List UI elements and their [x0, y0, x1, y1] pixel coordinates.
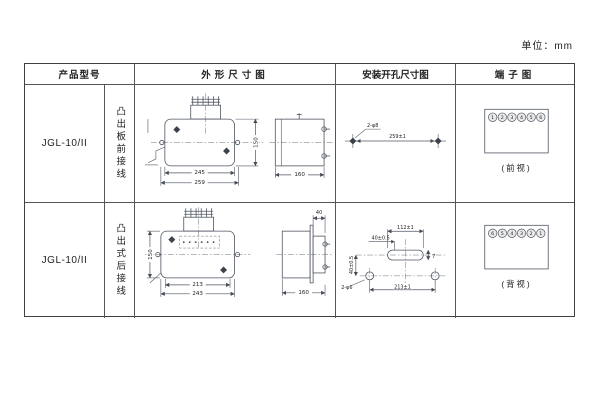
mounting-type-cell-row2: 凸出式后接线 [104, 203, 134, 318]
dim-width-inner-row2: 213 [192, 282, 203, 288]
header-install-hole-dimension: 安装开孔尺寸图 [335, 64, 455, 85]
dim-height-row1: 150 [253, 136, 259, 147]
fastener-diamond-icon [168, 236, 175, 243]
terminal-number: 3 [510, 115, 513, 121]
mounting-hole-icon [435, 137, 442, 144]
mounting-type-row1: 凸出板前接线 [115, 106, 125, 181]
terminal-number: 2 [530, 231, 533, 237]
dim-width-inner-row1: 245 [194, 169, 205, 175]
mounting-hole-icon [349, 137, 356, 144]
terminal-number: 4 [510, 231, 513, 237]
terminal-number: 6 [491, 231, 494, 237]
terminal-number: 6 [539, 115, 542, 121]
mounting-panel [310, 225, 313, 283]
dim-width-outer-row1: 259 [194, 179, 205, 185]
terminal-number: 4 [520, 115, 523, 121]
outline-drawing-rear-wiring: 150 213 243 40 [135, 203, 335, 318]
install-hole-drawing-row2: 112±1 40±0.5 40±0.5 7 213±1 2- [336, 203, 455, 318]
dim-depth-row1: 160 [294, 171, 305, 177]
terminal-number: 5 [530, 115, 533, 121]
header-product-model: 产品型号 [25, 64, 134, 85]
dim-height-row2: 150 [148, 249, 154, 260]
outline-drawing-cell-row2: 150 213 243 40 [134, 203, 335, 318]
dim-slot-length: 112±1 [397, 225, 414, 231]
model-name-row2: JGL-10/II [25, 203, 104, 318]
install-hole-drawing-row1: 259±1 2-φ8 [336, 85, 455, 203]
terminal-view-caption-row1: (前视) [501, 162, 531, 172]
terminal-circles: 1 2 3 4 5 6 [488, 112, 545, 121]
mounting-type-cell-row1: 凸出板前接线 [104, 85, 134, 203]
mounting-type-row2: 凸出式后接线 [115, 223, 125, 298]
dim-depth-row2: 160 [298, 290, 309, 296]
terminal-circles: 6 5 4 3 2 1 [488, 229, 545, 238]
fastener-diamond-icon [173, 126, 180, 133]
spec-table: 产品型号 外形尺寸图 安装开孔尺寸图 端子图 JGL-10/II 凸出板前接线 [24, 63, 575, 317]
fastener-diamond-icon [220, 266, 227, 273]
header-outline-dimension: 外形尺寸图 [134, 64, 335, 85]
dim-hole-spacing-row2: 213±1 [394, 284, 411, 290]
dim-slot-height: 7 [432, 254, 435, 260]
terminal-diagram-rear-view: 6 5 4 3 2 1 (背视) [456, 203, 574, 318]
model-name-row1: JGL-10/II [25, 85, 104, 203]
hole-callout-row1: 2-φ8 [367, 123, 378, 129]
outline-drawing-front-wiring: 245 259 150 160 [135, 85, 335, 203]
terminal-diagram-cell-row2: 6 5 4 3 2 1 (背视) [455, 203, 574, 318]
terminal-number: 1 [491, 115, 494, 121]
terminal-number: 3 [520, 231, 523, 237]
install-hole-cell-row1: 259±1 2-φ8 [335, 85, 455, 203]
unit-label: 单位：mm [521, 37, 573, 52]
terminal-diagram-front-view: 1 2 3 4 5 6 (前视) [456, 85, 574, 203]
hole-callout-row2: 2-φ6 [341, 285, 352, 291]
dim-offset-left: 40±0.5 [349, 256, 355, 274]
dim-offset: 40±0.5 [371, 236, 389, 242]
terminal-diagram-cell-row1: 1 2 3 4 5 6 (前视) [455, 85, 574, 203]
terminal-number: 2 [501, 115, 504, 121]
install-hole-cell-row2: 112±1 40±0.5 40±0.5 7 213±1 2- [335, 203, 455, 318]
fastener-diamond-icon [223, 147, 230, 154]
dim-rear-depth-row2: 40 [316, 210, 322, 216]
dim-hole-spacing-row1: 259±1 [389, 134, 406, 140]
terminal-view-caption-row2: (背视) [501, 279, 531, 289]
dim-width-outer-row2: 243 [192, 291, 203, 297]
terminal-number: 5 [501, 231, 504, 237]
header-terminal-diagram: 端子图 [455, 64, 574, 85]
outline-drawing-cell-row1: 245 259 150 160 [134, 85, 335, 203]
terminal-number: 1 [539, 231, 542, 237]
